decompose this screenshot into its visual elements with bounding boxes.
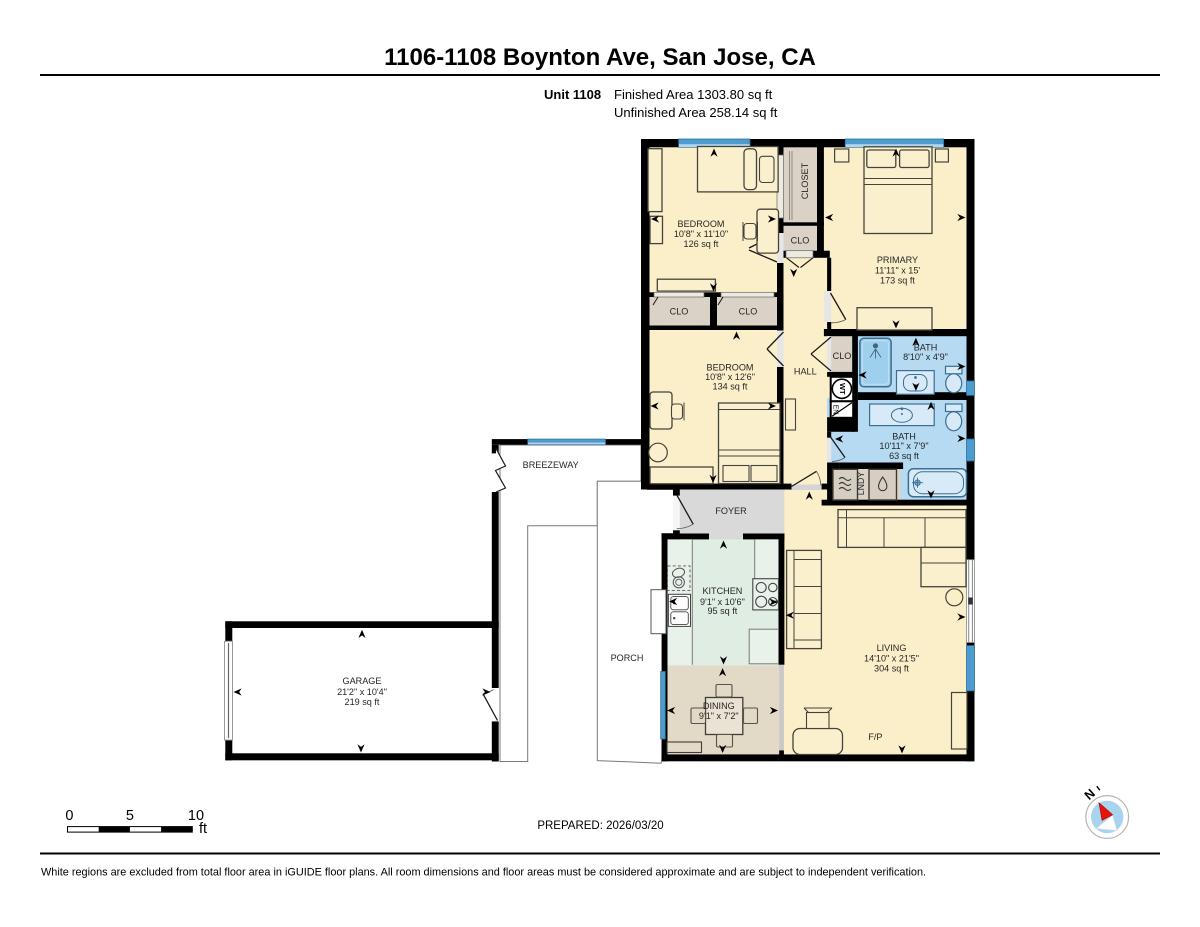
svg-text:GARAGE: GARAGE bbox=[343, 676, 382, 686]
svg-text:BATH: BATH bbox=[892, 432, 916, 442]
svg-text:HALL: HALL bbox=[794, 366, 817, 376]
svg-text:5: 5 bbox=[126, 808, 134, 824]
svg-text:CLO: CLO bbox=[791, 236, 810, 246]
svg-text:95 sq ft: 95 sq ft bbox=[707, 606, 737, 616]
svg-text:134 sq ft: 134 sq ft bbox=[713, 382, 748, 392]
svg-text:304 sq ft: 304 sq ft bbox=[874, 664, 909, 674]
svg-text:CLO: CLO bbox=[670, 307, 689, 317]
svg-text:White regions are excluded fro: White regions are excluded from total fl… bbox=[41, 867, 926, 879]
svg-text:F/P: F/P bbox=[868, 732, 882, 742]
svg-text:LNDY: LNDY bbox=[856, 472, 866, 496]
svg-text:FOYER: FOYER bbox=[715, 506, 747, 516]
svg-text:126 sq ft: 126 sq ft bbox=[684, 239, 719, 249]
svg-text:14'10" x 21'5": 14'10" x 21'5" bbox=[864, 653, 919, 663]
svg-text:10'8" x 11'10": 10'8" x 11'10" bbox=[674, 229, 728, 239]
svg-text:CLO: CLO bbox=[833, 351, 852, 361]
svg-text:PREPARED: 2026/03/20: PREPARED: 2026/03/20 bbox=[537, 820, 663, 832]
svg-text:173 sq ft: 173 sq ft bbox=[880, 275, 915, 285]
svg-text:ft: ft bbox=[199, 821, 207, 837]
svg-text:LIVING: LIVING bbox=[877, 643, 907, 653]
svg-text:PRIMARY: PRIMARY bbox=[877, 255, 918, 265]
svg-text:11'11" x 15': 11'11" x 15' bbox=[875, 265, 921, 275]
svg-text:63 sq ft: 63 sq ft bbox=[889, 451, 919, 461]
svg-text:CLO: CLO bbox=[739, 307, 758, 317]
svg-text:PORCH: PORCH bbox=[611, 653, 644, 663]
svg-text:10'11" x 7'9": 10'11" x 7'9" bbox=[879, 441, 928, 451]
svg-text:CLOSET: CLOSET bbox=[800, 162, 810, 199]
svg-text:BEDROOM: BEDROOM bbox=[707, 363, 754, 373]
svg-text:8'10" x 4'9": 8'10" x 4'9" bbox=[903, 352, 948, 362]
svg-text:WT: WT bbox=[838, 383, 847, 395]
svg-text:BEDROOM: BEDROOM bbox=[678, 219, 725, 229]
svg-text:10'8" x 12'6": 10'8" x 12'6" bbox=[705, 372, 755, 382]
svg-text:DINING: DINING bbox=[703, 701, 735, 711]
svg-text:EN: EN bbox=[832, 405, 839, 415]
svg-text:BREEZEWAY: BREEZEWAY bbox=[523, 460, 579, 470]
svg-text:0: 0 bbox=[65, 808, 73, 824]
svg-text:219 sq ft: 219 sq ft bbox=[345, 697, 380, 707]
svg-text:21'2" x 10'4": 21'2" x 10'4" bbox=[337, 687, 387, 697]
svg-text:KITCHEN: KITCHEN bbox=[702, 586, 742, 596]
svg-text:9'1" x 7'2": 9'1" x 7'2" bbox=[699, 711, 739, 721]
